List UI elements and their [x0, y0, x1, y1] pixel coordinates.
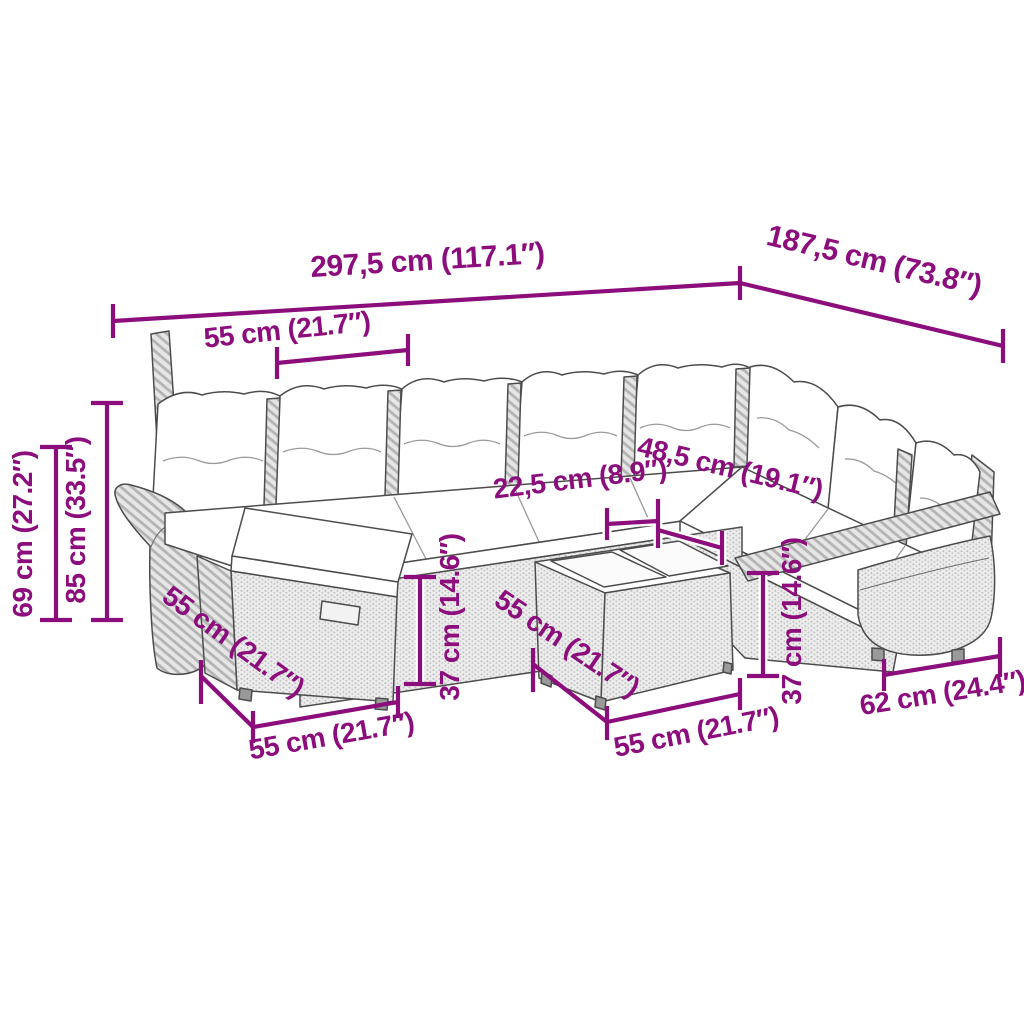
dim-line-total-height — [91, 403, 123, 620]
back-cushion — [272, 385, 402, 506]
rattan-post — [385, 390, 401, 496]
dim-label-total-height: 85 cm (33.5″) — [60, 436, 91, 603]
back-cushion — [152, 391, 280, 516]
product-dimension-diagram: 297,5 cm (117.1″) 187,5 cm (73.8″) 55 cm… — [0, 0, 1024, 1024]
dim-label-table-width: 55 cm (21.7″) — [611, 701, 781, 763]
dim-label-total-depth: 187,5 cm (73.8″) — [763, 219, 984, 302]
diagram-canvas: 297,5 cm (117.1″) 187,5 cm (73.8″) 55 cm… — [0, 0, 1024, 1024]
rattan-post — [734, 368, 750, 467]
dim-label-stool-height: 37 cm (14.6″) — [434, 533, 465, 700]
dim-label-total-width: 297,5 cm (117.1″) — [309, 237, 545, 284]
dim-label-back-height: 69 cm (27.2″) — [7, 450, 38, 617]
dim-label-table-height: 37 cm (14.6″) — [776, 537, 807, 704]
